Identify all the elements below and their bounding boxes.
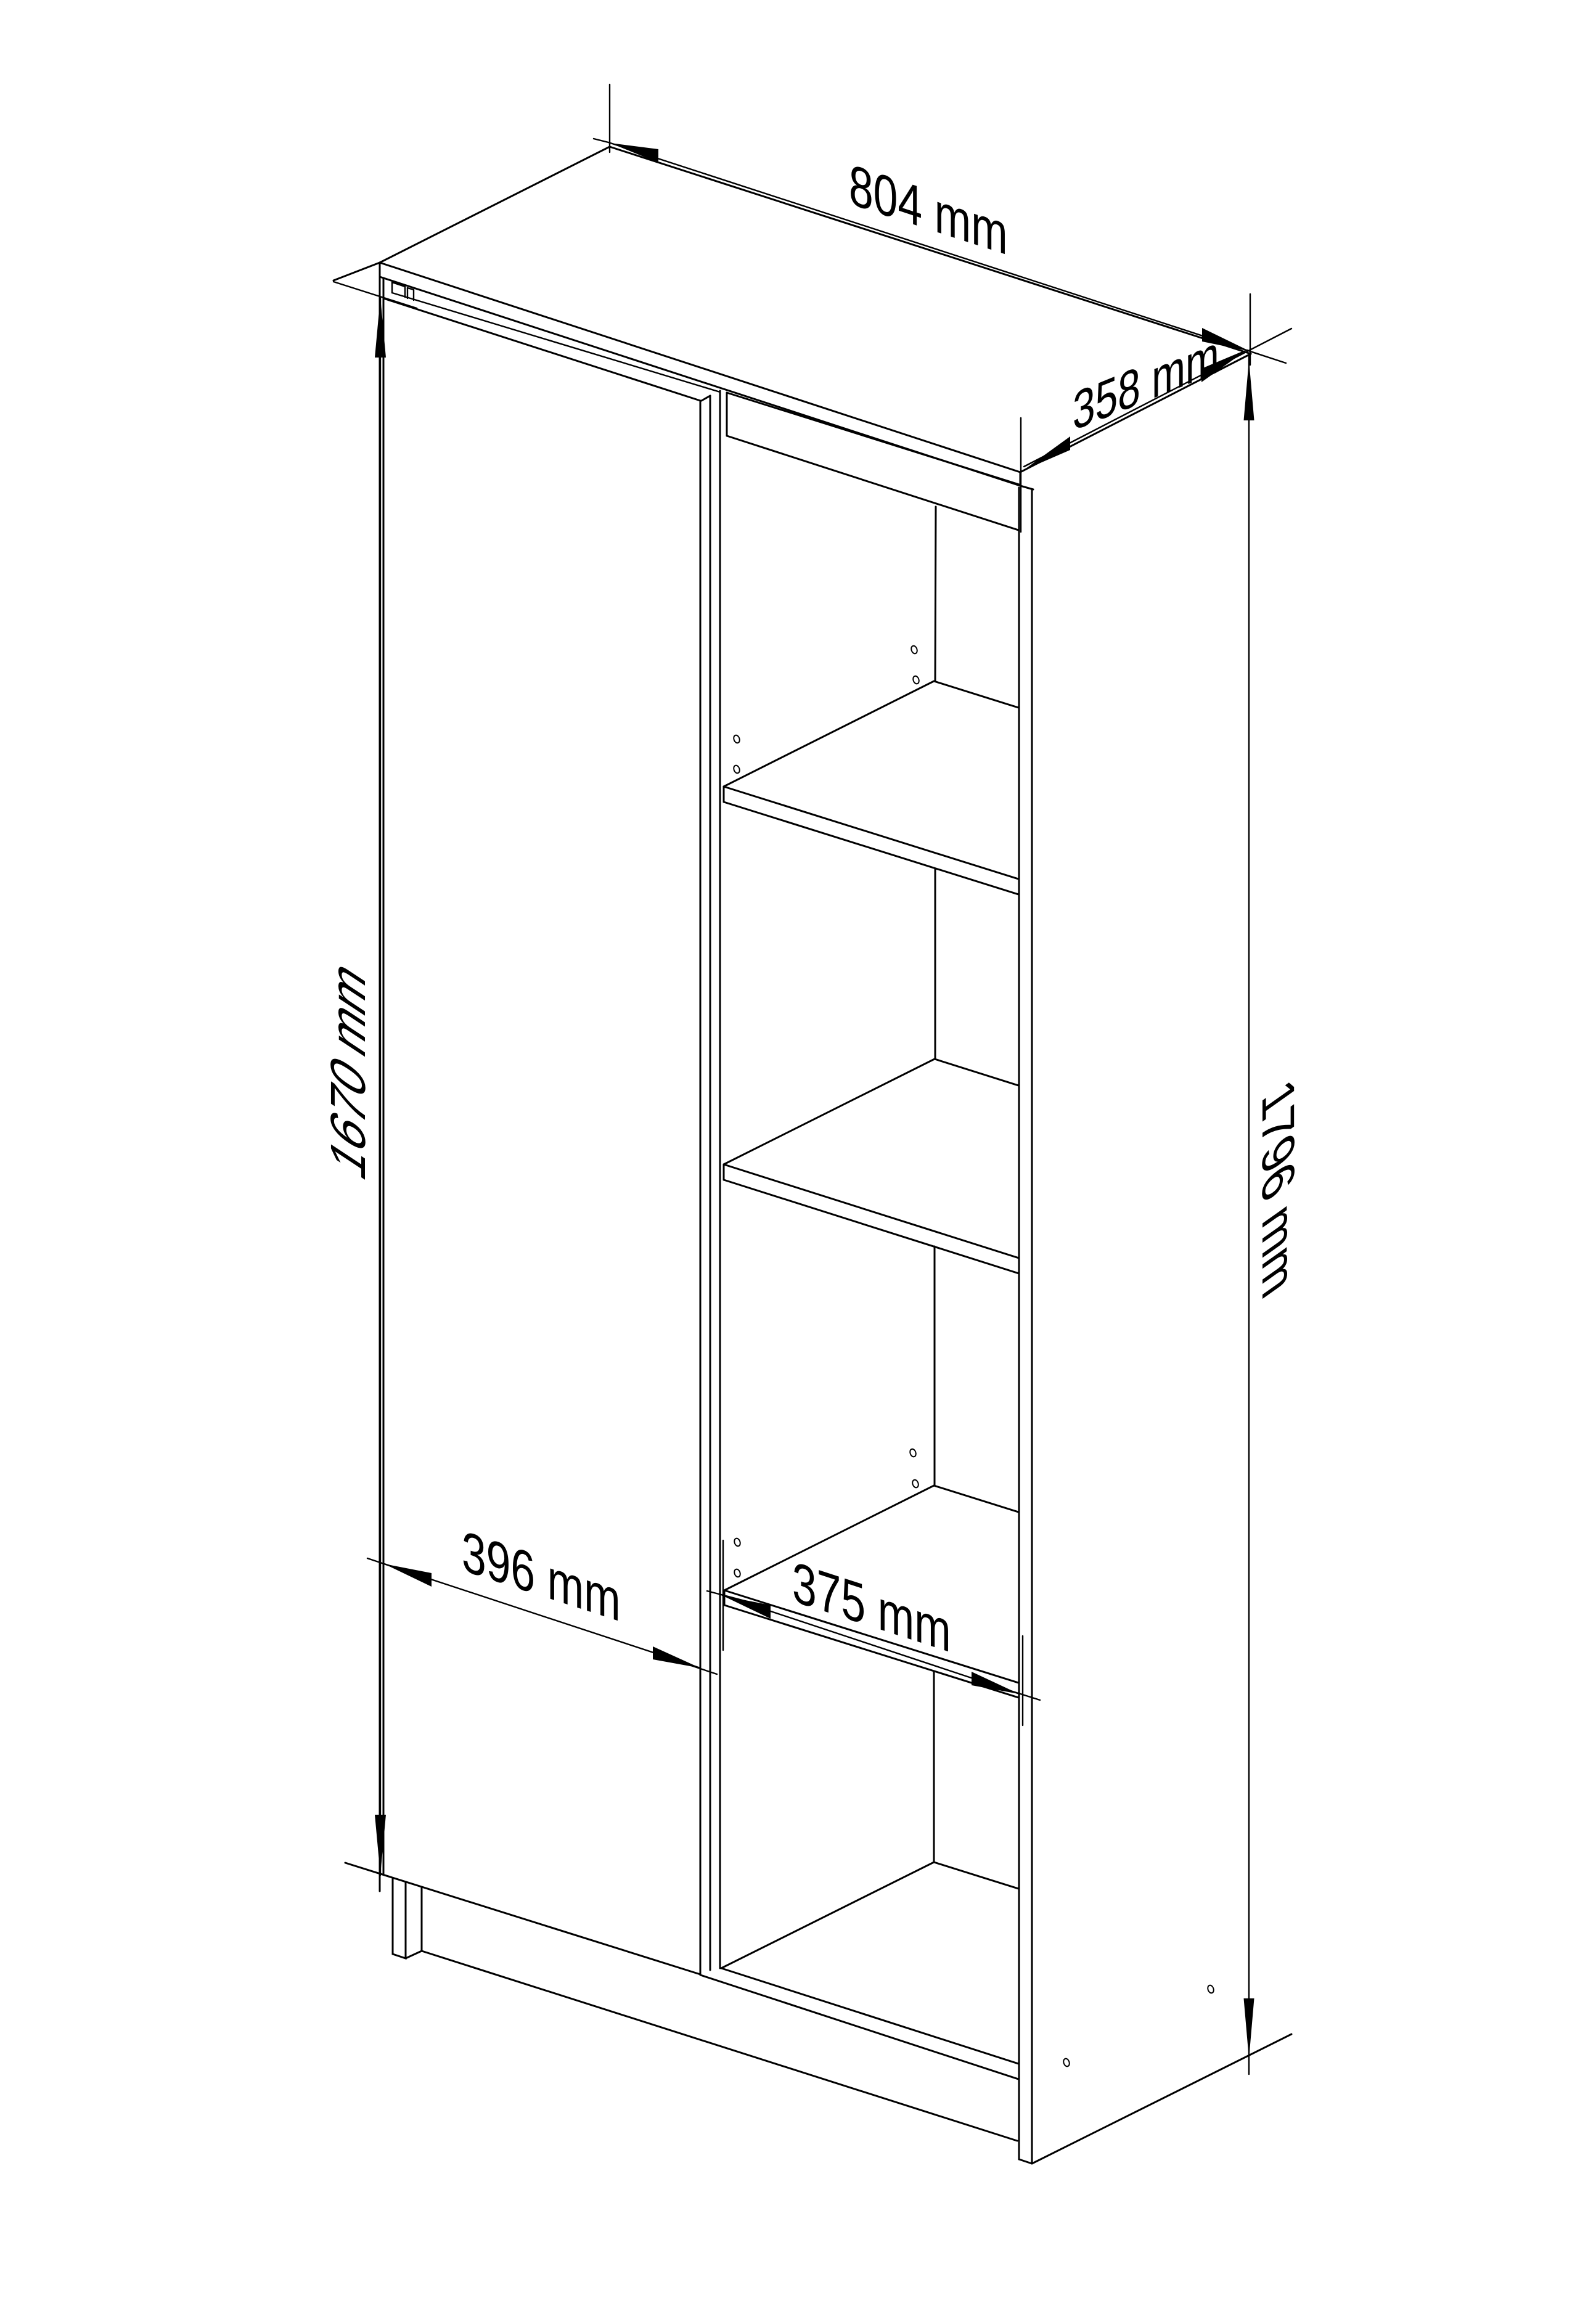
svg-text:1796 mm: 1796 mm bbox=[1253, 1068, 1304, 1309]
svg-text:1670 mm: 1670 mm bbox=[321, 949, 376, 1191]
